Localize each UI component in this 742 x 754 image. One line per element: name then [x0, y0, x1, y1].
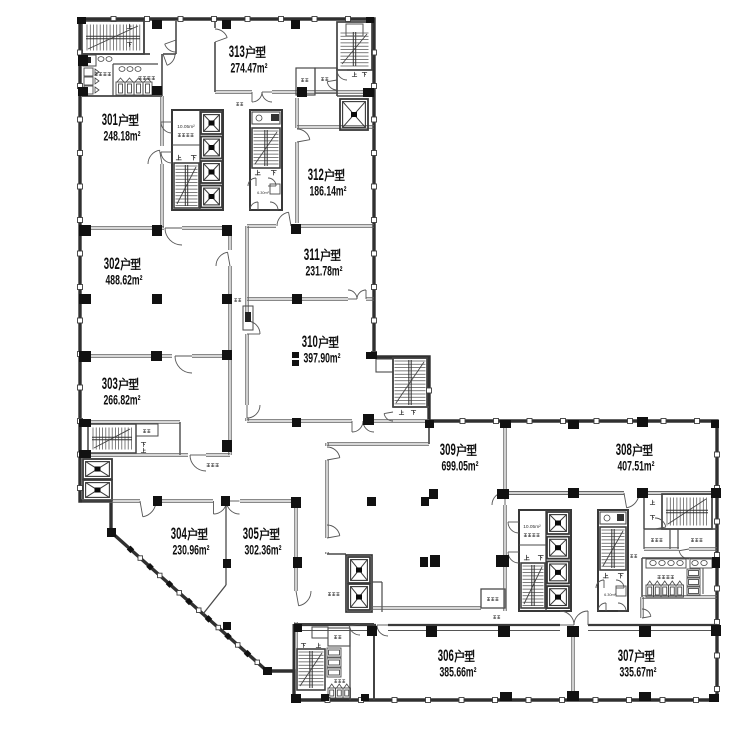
- svg-text:266.82m²: 266.82m²: [104, 392, 141, 408]
- svg-text:302: 302: [104, 255, 120, 273]
- svg-text:311: 311: [304, 246, 320, 264]
- svg-text:301: 301: [102, 111, 118, 129]
- svg-text:6.30m²: 6.30m²: [604, 593, 617, 597]
- svg-text:335.67m²: 335.67m²: [620, 664, 657, 680]
- svg-text:303: 303: [102, 375, 118, 393]
- svg-text:313: 313: [229, 43, 245, 61]
- svg-text:304: 304: [171, 525, 187, 543]
- svg-text:312: 312: [308, 166, 324, 184]
- svg-text:230.96m²: 230.96m²: [173, 542, 210, 558]
- svg-text:310: 310: [302, 333, 318, 351]
- svg-text:308: 308: [616, 441, 632, 459]
- svg-text:302.36m²: 302.36m²: [245, 542, 282, 558]
- svg-text:10.05m²: 10.05m²: [523, 524, 541, 530]
- svg-text:6.30m²: 6.30m²: [257, 191, 270, 195]
- svg-text:10.05m²: 10.05m²: [177, 124, 195, 130]
- svg-text:305: 305: [243, 525, 259, 543]
- svg-text:274.47m²: 274.47m²: [231, 60, 268, 76]
- svg-text:397.90m²: 397.90m²: [304, 350, 341, 366]
- svg-text:231.78m²: 231.78m²: [306, 263, 343, 279]
- svg-text:407.51m²: 407.51m²: [618, 458, 655, 474]
- svg-text:385.66m²: 385.66m²: [440, 664, 477, 680]
- svg-text:699.05m²: 699.05m²: [442, 458, 479, 474]
- svg-text:307: 307: [618, 647, 634, 665]
- svg-text:309: 309: [440, 441, 456, 459]
- svg-text:306: 306: [438, 647, 454, 665]
- svg-text:186.14m²: 186.14m²: [310, 183, 347, 199]
- svg-text:488.62m²: 488.62m²: [106, 272, 143, 288]
- svg-text:248.18m²: 248.18m²: [104, 128, 141, 144]
